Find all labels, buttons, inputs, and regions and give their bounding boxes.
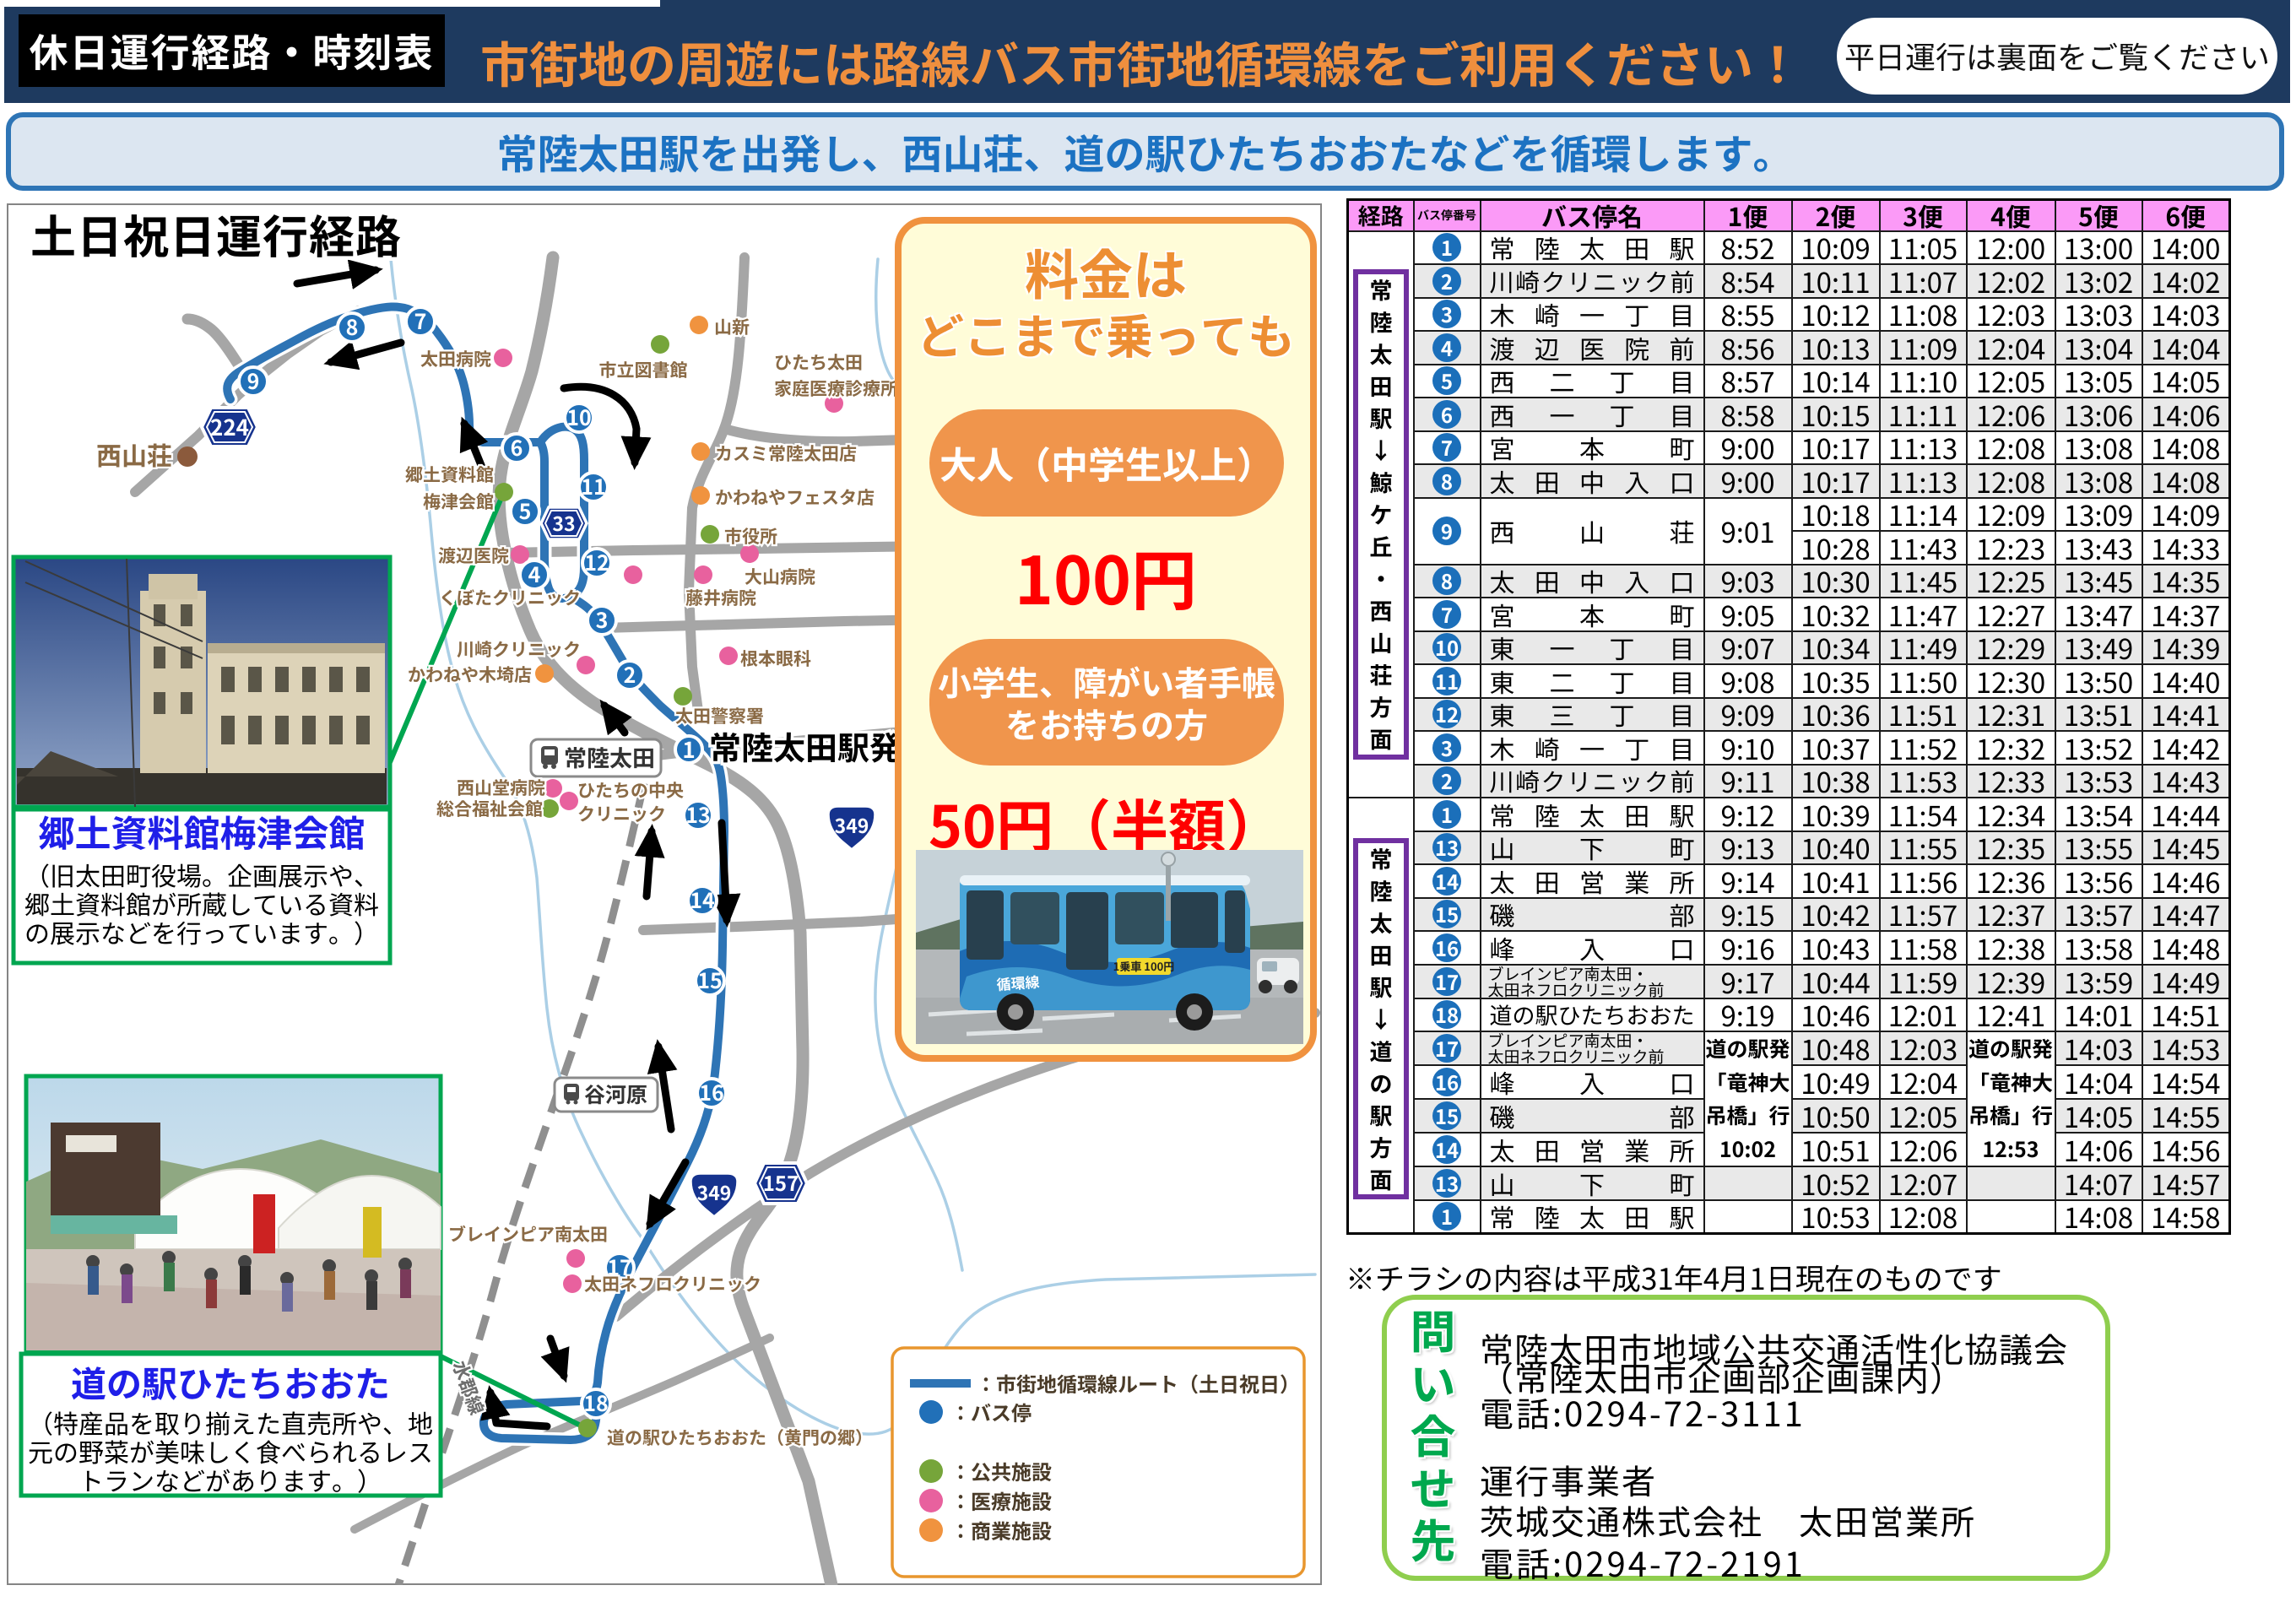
svg-text:ひたちの中央: ひたちの中央 bbox=[577, 777, 684, 803]
svg-text:33: 33 bbox=[552, 508, 575, 537]
svg-text:常陸太田: 常陸太田 bbox=[564, 740, 655, 773]
svg-text:1: 1 bbox=[682, 733, 695, 765]
svg-text:梅津会館: 梅津会館 bbox=[423, 489, 494, 514]
svg-text:157: 157 bbox=[763, 1167, 799, 1197]
svg-text:市立図書館: 市立図書館 bbox=[599, 357, 688, 382]
svg-text:：商業施設: ：商業施設 bbox=[950, 1515, 1052, 1545]
svg-text:8: 8 bbox=[346, 311, 359, 342]
svg-text:：公共施設: ：公共施設 bbox=[950, 1456, 1052, 1485]
svg-text:太田病院: 太田病院 bbox=[420, 346, 491, 371]
svg-text:：バス停: ：バス停 bbox=[950, 1397, 1032, 1426]
svg-text:藤井病院: 藤井病院 bbox=[685, 585, 756, 610]
svg-text:9: 9 bbox=[247, 365, 260, 396]
svg-text:16: 16 bbox=[699, 1077, 724, 1107]
svg-text:カスミ常陸太田店: カスミ常陸太田店 bbox=[715, 441, 857, 466]
svg-text:かわねやフェスタ店: かわねやフェスタ店 bbox=[715, 484, 875, 510]
svg-text:川崎クリニック: 川崎クリニック bbox=[457, 636, 581, 662]
svg-text:根本眼科: 根本眼科 bbox=[740, 646, 811, 671]
svg-text:12: 12 bbox=[584, 547, 609, 577]
svg-text:5: 5 bbox=[519, 495, 532, 526]
svg-text:7: 7 bbox=[414, 306, 427, 336]
svg-text:かわねや木埼店: かわねや木埼店 bbox=[408, 662, 532, 687]
svg-text:常陸太田駅発: 常陸太田駅発 bbox=[709, 722, 902, 769]
svg-text:郷土資料館梅津会館: 郷土資料館梅津会館 bbox=[39, 805, 366, 858]
svg-text:1乗車 100円: 1乗車 100円 bbox=[1113, 958, 1175, 974]
svg-text:18: 18 bbox=[583, 1388, 609, 1418]
svg-text:谷河原: 谷河原 bbox=[584, 1079, 647, 1109]
svg-text:西山荘: 西山荘 bbox=[96, 436, 172, 473]
svg-text:349: 349 bbox=[697, 1177, 732, 1206]
svg-text:道の駅ひたちおおた: 道の駅ひたちおおた bbox=[71, 1356, 390, 1408]
svg-text:349: 349 bbox=[835, 810, 869, 839]
svg-text:郷土資料館: 郷土資料館 bbox=[405, 462, 494, 487]
svg-text:太田警察署: 太田警察署 bbox=[675, 703, 764, 728]
svg-text:ブレインピア南太田: ブレインピア南太田 bbox=[448, 1221, 608, 1247]
svg-text:太田ネフロクリニック: 太田ネフロクリニック bbox=[584, 1271, 761, 1296]
svg-text:総合福祉会館: 総合福祉会館 bbox=[436, 796, 543, 821]
svg-text:渡辺医院: 渡辺医院 bbox=[438, 543, 509, 568]
svg-text:クリニック: クリニック bbox=[577, 801, 666, 826]
svg-text:くぼたクリニック: くぼたクリニック bbox=[439, 585, 581, 610]
svg-text:市役所: 市役所 bbox=[724, 523, 777, 549]
svg-text:トランなどがあります。）: トランなどがあります。） bbox=[79, 1461, 382, 1498]
svg-text:循環線: 循環線 bbox=[996, 970, 1041, 993]
svg-text:道の駅ひたちおおた（黄門の郷）: 道の駅ひたちおおた（黄門の郷） bbox=[607, 1425, 873, 1450]
svg-text:14: 14 bbox=[690, 885, 715, 915]
svg-text:10: 10 bbox=[566, 402, 592, 432]
svg-text:家庭医療診療所: 家庭医療診療所 bbox=[774, 376, 898, 401]
svg-text:13: 13 bbox=[685, 799, 711, 830]
svg-text:224: 224 bbox=[210, 411, 249, 442]
svg-text:2: 2 bbox=[624, 659, 636, 690]
svg-text:6: 6 bbox=[511, 432, 523, 463]
svg-text:3: 3 bbox=[596, 604, 609, 635]
svg-text:：市街地循環線ルート（土日祝日）: ：市街地循環線ルート（土日祝日） bbox=[976, 1368, 1300, 1398]
svg-text:の展示などを行っています。）: の展示などを行っています。） bbox=[24, 913, 379, 950]
svg-text:山新: 山新 bbox=[714, 314, 750, 339]
svg-text:：医療施設: ：医療施設 bbox=[950, 1485, 1052, 1515]
svg-text:ひたち太田: ひたち太田 bbox=[774, 349, 863, 375]
svg-text:15: 15 bbox=[697, 965, 723, 995]
svg-text:土日祝日運行経路: 土日祝日運行経路 bbox=[30, 203, 402, 267]
svg-text:11: 11 bbox=[581, 471, 606, 501]
